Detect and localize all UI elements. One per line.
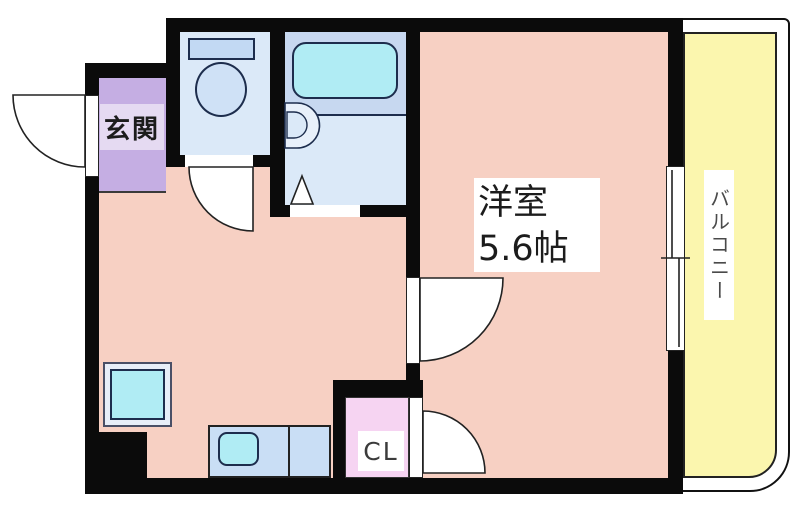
- toilet-bath-divider-wall: [270, 18, 285, 217]
- floor-plan: 玄関 洋室 5.6帖 CL バルコニー: [0, 0, 800, 511]
- bottom-wall: [85, 478, 683, 494]
- kitchen-sink-icon: [218, 432, 259, 466]
- closet-left-wall: [333, 380, 345, 494]
- entrance-door-leaf: [85, 95, 99, 177]
- washing-machine-icon: [110, 369, 165, 420]
- bathtub-icon: [292, 42, 398, 99]
- sliding-window-icon: [666, 166, 685, 351]
- toilet-bottom-wall-left: [166, 155, 185, 167]
- toilet-door-gap: [185, 155, 253, 167]
- bathroom-floor: [285, 116, 406, 205]
- room-size-text: 5.6帖: [478, 226, 596, 272]
- bathroom-door-gap: [290, 205, 360, 217]
- top-wall: [166, 18, 683, 32]
- room-name-text: 洋室: [478, 180, 596, 226]
- toilet-tank-icon: [188, 38, 255, 60]
- toilet-icon: [195, 62, 247, 117]
- center-divider-wall-upper: [406, 18, 420, 277]
- left-wall-lower: [85, 177, 99, 432]
- entrance-door-swing-icon: [13, 95, 85, 167]
- toilet-left-wall: [166, 18, 180, 167]
- kitchen-counter-divider: [288, 426, 290, 477]
- entrance-label: 玄関: [100, 104, 164, 150]
- left-wall-upper: [85, 63, 99, 95]
- room-label: 洋室 5.6帖: [474, 178, 600, 272]
- room-right-wall-upper: [668, 32, 683, 167]
- room-right-wall-lower: [668, 350, 683, 478]
- closet-door-leaf: [409, 397, 423, 478]
- balcony-label: バルコニー: [704, 170, 734, 320]
- closet-top-wall: [333, 380, 423, 397]
- room-door-leaf: [406, 277, 420, 364]
- closet-label: CL: [358, 431, 404, 471]
